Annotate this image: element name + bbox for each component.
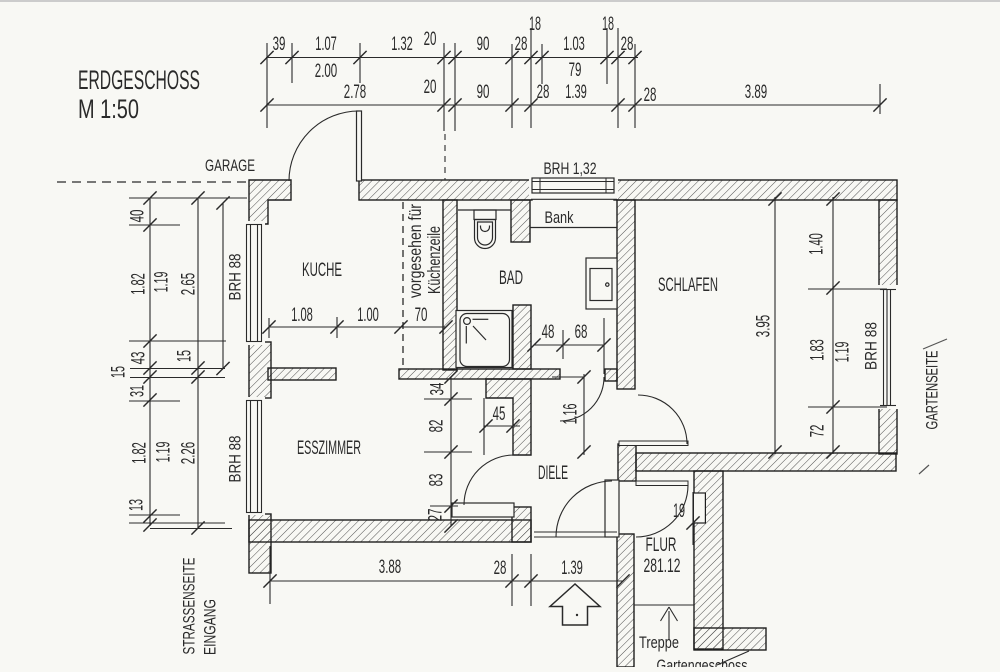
svg-text:GARTENSEITE: GARTENSEITE — [923, 351, 942, 430]
svg-text:EINGANG: EINGANG — [201, 599, 220, 655]
svg-text:45: 45 — [493, 404, 506, 425]
svg-text:KUCHE: KUCHE — [302, 260, 342, 281]
svg-text:28: 28 — [515, 34, 528, 55]
svg-text:Bank: Bank — [545, 208, 574, 227]
svg-text:BRH 1,32: BRH 1,32 — [544, 160, 597, 178]
svg-text:83: 83 — [427, 474, 448, 487]
svg-text:70: 70 — [415, 305, 428, 326]
svg-text:79: 79 — [569, 60, 582, 81]
svg-text:BRH 88: BRH 88 — [226, 436, 245, 483]
svg-text:72: 72 — [808, 425, 829, 438]
svg-text:2.26: 2.26 — [179, 442, 200, 464]
svg-text:M 1:50: M 1:50 — [78, 94, 139, 124]
svg-text:34: 34 — [428, 382, 449, 395]
svg-text:28: 28 — [494, 558, 507, 579]
svg-text:vorgesehen für: vorgesehen für — [405, 204, 425, 298]
svg-text:ESSZIMMER: ESSZIMMER — [297, 438, 361, 459]
svg-text:1.83: 1.83 — [808, 339, 829, 361]
svg-text:68: 68 — [575, 322, 588, 343]
svg-text:15: 15 — [175, 350, 196, 362]
svg-text:82: 82 — [427, 420, 448, 433]
svg-text:1.39: 1.39 — [561, 558, 583, 579]
svg-text:1.19: 1.19 — [833, 342, 854, 363]
svg-text:Gartengeschoss: Gartengeschoss — [657, 657, 748, 667]
svg-text:3.89: 3.89 — [745, 82, 767, 103]
svg-text:BRH 88: BRH 88 — [862, 322, 881, 370]
svg-text:1.19: 1.19 — [154, 442, 175, 463]
svg-text:1.82: 1.82 — [130, 442, 151, 464]
svg-text:ERDGESCHOSS: ERDGESCHOSS — [78, 65, 200, 95]
svg-text:1.03: 1.03 — [563, 34, 585, 55]
svg-text:BRH 88: BRH 88 — [226, 254, 245, 301]
svg-text:1.39: 1.39 — [565, 82, 587, 103]
svg-text:1.82: 1.82 — [129, 273, 150, 295]
svg-text:1.08: 1.08 — [291, 305, 313, 326]
svg-text:13: 13 — [127, 499, 148, 511]
svg-text:3.88: 3.88 — [379, 557, 401, 578]
svg-text:90: 90 — [477, 82, 490, 103]
svg-text:3.95: 3.95 — [754, 315, 775, 337]
svg-text:28: 28 — [644, 85, 657, 106]
svg-text:18: 18 — [529, 14, 541, 35]
svg-text:1.40: 1.40 — [807, 233, 828, 255]
svg-text:2.65: 2.65 — [179, 273, 200, 295]
svg-text:43: 43 — [129, 352, 150, 365]
svg-text:40: 40 — [128, 210, 149, 223]
svg-text:281.12: 281.12 — [644, 556, 681, 577]
svg-text:Treppe: Treppe — [639, 634, 679, 652]
svg-text:28: 28 — [621, 34, 634, 55]
svg-text:19: 19 — [673, 501, 685, 522]
svg-text:48: 48 — [542, 322, 555, 343]
svg-text:FLUR: FLUR — [646, 535, 677, 556]
svg-text:SCHLAFEN: SCHLAFEN — [658, 275, 718, 296]
svg-text:2.00: 2.00 — [315, 61, 337, 82]
svg-text:28: 28 — [537, 82, 550, 103]
svg-text:STRASSENSEITE: STRASSENSEITE — [180, 558, 199, 655]
svg-text:39: 39 — [273, 34, 286, 55]
svg-text:20: 20 — [424, 29, 437, 50]
svg-text:1.00: 1.00 — [357, 305, 379, 326]
svg-text:BAD: BAD — [499, 268, 523, 289]
svg-text:Küchenzeile: Küchenzeile — [424, 226, 444, 294]
svg-text:1.16: 1.16 — [561, 404, 582, 425]
svg-text:90: 90 — [477, 34, 490, 55]
svg-text:31: 31 — [128, 385, 149, 397]
svg-text:2.78: 2.78 — [344, 82, 366, 103]
svg-text:20: 20 — [424, 77, 437, 98]
svg-text:GARAGE: GARAGE — [205, 156, 255, 175]
svg-text:1.07: 1.07 — [315, 34, 337, 55]
svg-text:18: 18 — [602, 14, 614, 35]
svg-text:1.32: 1.32 — [391, 34, 413, 55]
svg-text:15: 15 — [109, 366, 130, 378]
svg-text:1.19: 1.19 — [152, 272, 173, 293]
svg-text:DIELE: DIELE — [538, 463, 568, 484]
svg-text:27: 27 — [426, 509, 447, 522]
